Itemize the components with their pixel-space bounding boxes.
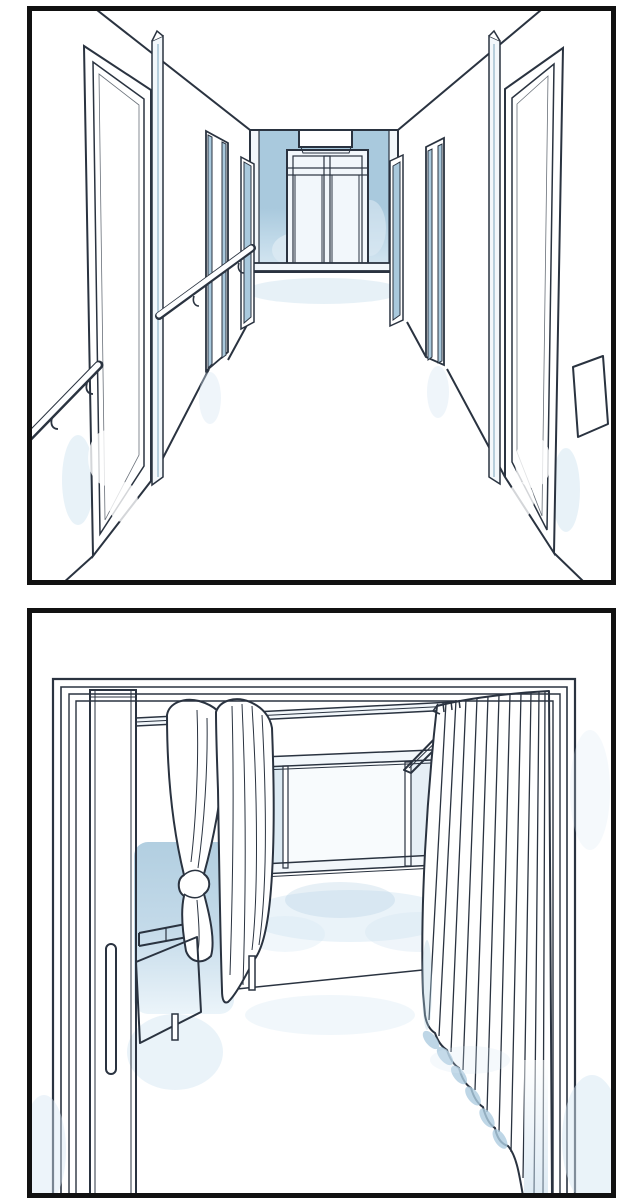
right-door-far (390, 155, 403, 326)
left-door-middle (206, 131, 228, 371)
bed-leg-front (172, 1014, 178, 1040)
illustration-canvas (0, 0, 640, 1204)
door-handle (106, 944, 116, 1074)
left-door-near (84, 46, 151, 556)
comic-page (0, 0, 640, 1204)
left-wall-pilaster (152, 31, 163, 485)
floor-wash-center (245, 995, 415, 1035)
right-wall-pilaster (489, 31, 500, 484)
right-door-middle (426, 138, 444, 365)
right-door-near (505, 48, 563, 553)
left-wall-wash2 (199, 372, 221, 424)
corridor-panel (25, 6, 617, 585)
left-door-far (241, 157, 254, 329)
corridor-double-door (287, 150, 368, 272)
floor-reflection (246, 278, 402, 304)
floor-wash-right (430, 1046, 510, 1074)
room-panel (22, 608, 622, 1204)
curtain-bottom-wash (524, 1060, 548, 1196)
handrail-end-wall (248, 263, 398, 271)
window-pane-center (288, 761, 405, 869)
right-wall-wash2 (427, 366, 449, 418)
bed-leg-far (249, 956, 255, 990)
